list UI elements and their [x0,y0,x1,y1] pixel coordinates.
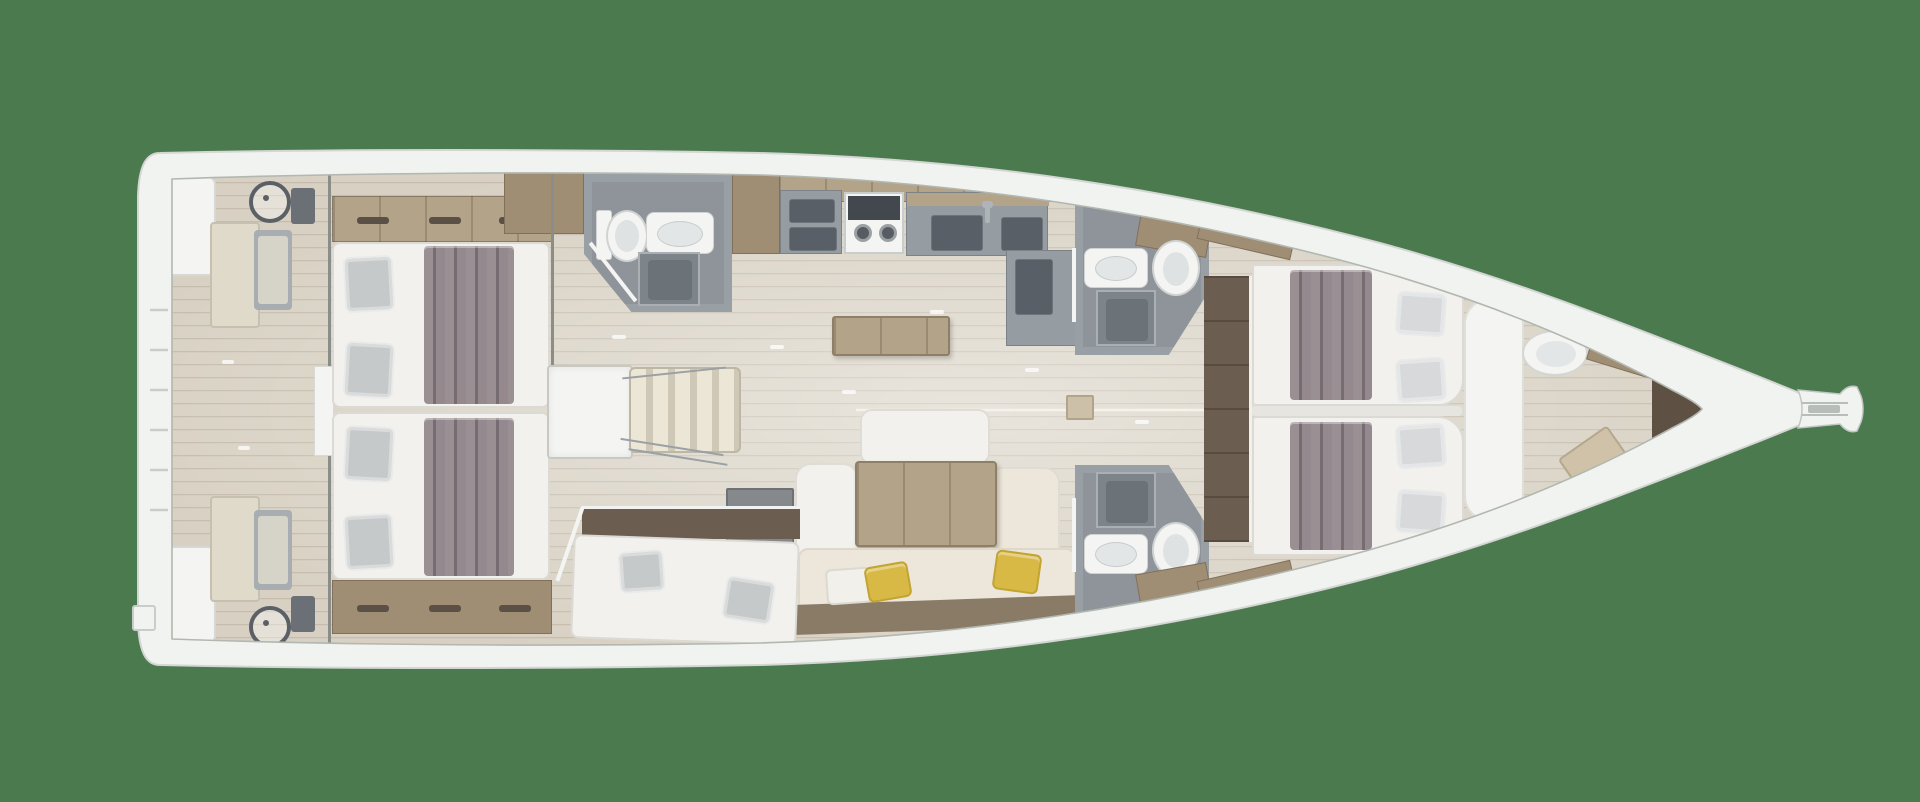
fwd-head-port-vanity [1084,248,1148,288]
dinette-table [855,461,997,547]
aft-head-sink [657,221,703,247]
bow-cushion [1464,298,1524,522]
companionway-stairs [629,367,741,453]
pillow [617,549,666,594]
pillow [1395,488,1448,535]
blanket [1290,270,1372,400]
pillow [1395,356,1448,403]
cockpit-cushion-port [258,236,288,304]
fwd-head-port-shower [1096,290,1156,346]
helm-console-port [291,188,315,224]
fwd-cabin-bed-starboard [1252,416,1464,556]
blanket [424,246,514,404]
yacht-floor-plan [0,0,1920,802]
cockpit-bench-port [210,222,260,328]
aft-cabin-port-wardrobe [504,172,584,234]
stove-burner [854,224,872,242]
mid-cabin-berth [570,534,799,646]
yellow-pillow-left [863,560,913,603]
helm-wheel-port [249,181,291,223]
aft-cabin-starboard-bed [332,412,550,580]
mid-cabin-wall [582,506,800,539]
aft-head-vanity [646,212,714,254]
galley-cabinet-column [732,170,780,254]
aft-head-shower [638,252,700,306]
fwd-cabin-dresser-walkway [1204,276,1252,542]
galley-sink-basin [931,215,983,251]
pillow [343,255,396,314]
stove-top [848,196,900,220]
helm-wheel-starboard [249,606,291,648]
galley-stove [844,192,904,254]
pillow [1395,422,1448,469]
fwd-head-port-door [1072,248,1076,322]
helm-console-starboard [291,596,315,632]
cockpit-cushion-starboard [258,516,288,584]
companionway-opening [314,366,334,456]
pillow [343,513,396,572]
forepeak-sink [1522,330,1588,376]
galley-sink-basin [1001,217,1043,251]
pillow [721,575,777,626]
stern-locker-starboard [166,546,216,644]
stove-burner [879,224,897,242]
floor-hatch [1066,395,1094,420]
saloon-sideboard [832,316,950,356]
stern-locker-port [166,176,216,276]
aft-bulkhead [551,174,554,366]
fwd-head-stbd-vanity [1084,534,1148,574]
fwd-head-stbd-shower [1096,472,1156,528]
blanket [424,418,514,576]
fwd-cabin-bed-divider [1252,406,1462,416]
pillow [1395,290,1448,337]
pillow [343,425,396,484]
fwd-cabin-bed-port [1252,264,1464,406]
hull-base [0,0,1920,802]
blanket [1290,422,1372,550]
sofa-backrest-top [860,409,990,465]
sink-counter-wood [907,193,1049,206]
galley-counter-unit [780,190,842,254]
pillow [343,341,396,400]
fwd-head-port-toilet [1152,240,1200,296]
engine-box [547,365,633,459]
galley-faucet-head [982,201,993,208]
helm-wheel-starboard-hub [263,620,269,626]
fwd-head-stbd-door [1072,498,1076,572]
windlass [1730,400,1748,418]
cockpit-bench-starboard [210,496,260,602]
aft-cabin-starboard-shelf [332,580,552,634]
yellow-pillow-right [991,549,1042,595]
helm-wheel-port-hub [263,195,269,201]
galley-sink-counter [906,192,1048,256]
aft-cabin-port-bed [332,242,550,408]
